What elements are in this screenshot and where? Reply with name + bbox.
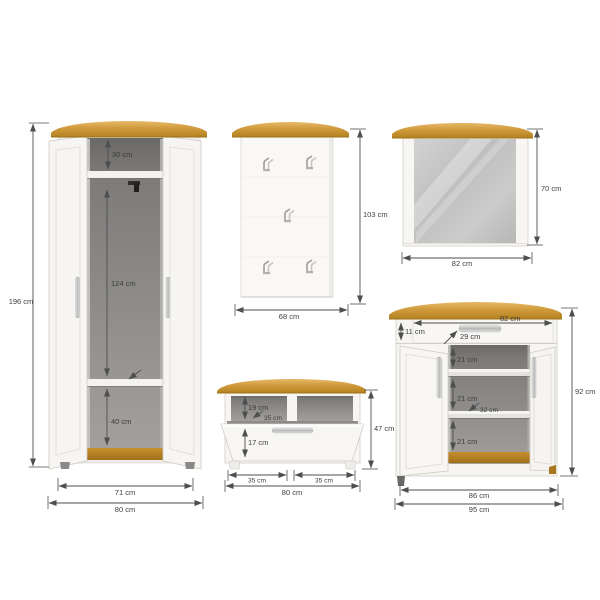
wardrobe-middle-shelf: [87, 379, 163, 386]
wardrobe-middle-compartment-label: 124 cm: [111, 279, 136, 288]
bench-drawer-height-label: 17 cm: [248, 438, 268, 447]
wardrobe-width-label: 80 cm: [115, 505, 135, 514]
sideboard-drawer-depth-label: 29 cm: [460, 332, 480, 341]
sideboard-right-door-handle: [532, 357, 536, 398]
wardrobe-interior: [87, 138, 163, 448]
panel-width-label: 68 cm: [279, 312, 299, 321]
sideboard-wood-top: [389, 302, 562, 319]
sideboard-compartment1-label: 21 cm: [457, 355, 477, 364]
sideboard-height-label: 92 cm: [575, 387, 595, 396]
wardrobe-right-foot: [185, 462, 195, 469]
panel-height-label: 103 cm: [363, 210, 388, 219]
wardrobe-left-door: [49, 136, 87, 469]
sideboard-compartment2-label: 21 cm: [457, 394, 477, 403]
wardrobe-bottom-compartment-label: 40 cm: [111, 417, 131, 426]
sideboard-inner-width-label: 86 cm: [469, 491, 489, 500]
bench-compartment-height-label: 19 cm: [248, 403, 268, 412]
wardrobe-right-door-handle: [166, 277, 170, 318]
bench-right-foot: [345, 461, 356, 469]
sideboard-left-door-handle: [437, 357, 442, 398]
sideboard-left-foot: [397, 476, 405, 486]
bench-right-width-label: 35 cm: [315, 478, 333, 485]
sideboard-drawer-handle: [459, 325, 501, 332]
wardrobe-left-door-handle: [76, 277, 80, 318]
wardrobe-interior-left-wall: [87, 139, 90, 448]
wardrobe-floor: [85, 448, 163, 460]
mirror: [392, 123, 533, 246]
mirror-height-label: 70 cm: [541, 184, 561, 193]
bench-compartment-depth-label: 35 cm: [264, 415, 282, 422]
mirror-wood-top: [392, 123, 533, 138]
coat-panel: [232, 122, 349, 297]
sideboard-shelf: [448, 369, 530, 377]
diagram-canvas: 196 cm 30 cm 124 cm 40 cm 71 cm 80 cm: [0, 0, 600, 600]
wardrobe-interior-right-wall: [160, 139, 163, 448]
sideboard-drawer-height-label: 11 cm: [405, 327, 425, 336]
wardrobe-top-compartment-label: 30 cm: [112, 150, 132, 159]
wardrobe-wood-top: [51, 121, 207, 137]
sideboard-compartment3-label: 21 cm: [457, 437, 477, 446]
wardrobe-height-label: 196 cm: [9, 297, 34, 306]
furniture-dimension-diagram: 196 cm 30 cm 124 cm 40 cm 71 cm 80 cm: [0, 0, 600, 600]
sideboard-shelf-depth-label: 32 cm: [480, 407, 498, 414]
bench-drawer-handle: [272, 428, 313, 433]
sideboard-floor: [448, 452, 530, 463]
bench-wood-top: [217, 379, 366, 393]
bench-left-width-label: 35 cm: [248, 478, 266, 485]
bench-right-compartment: [297, 396, 353, 421]
bench-left-foot: [229, 461, 240, 469]
panel-wood-top: [232, 122, 349, 137]
wardrobe-left-foot: [60, 462, 70, 469]
bench-height-label: 47 cm: [374, 424, 394, 433]
wardrobe-top-shelf: [87, 171, 163, 178]
bench: [217, 379, 366, 469]
bench-width-label: 80 cm: [282, 488, 302, 497]
mirror-width-label: 82 cm: [452, 259, 472, 268]
wardrobe-inner-width-label: 71 cm: [115, 488, 135, 497]
sideboard-width-label: 95 cm: [469, 505, 489, 514]
sideboard-drawer-width-label: 82 cm: [500, 314, 520, 323]
